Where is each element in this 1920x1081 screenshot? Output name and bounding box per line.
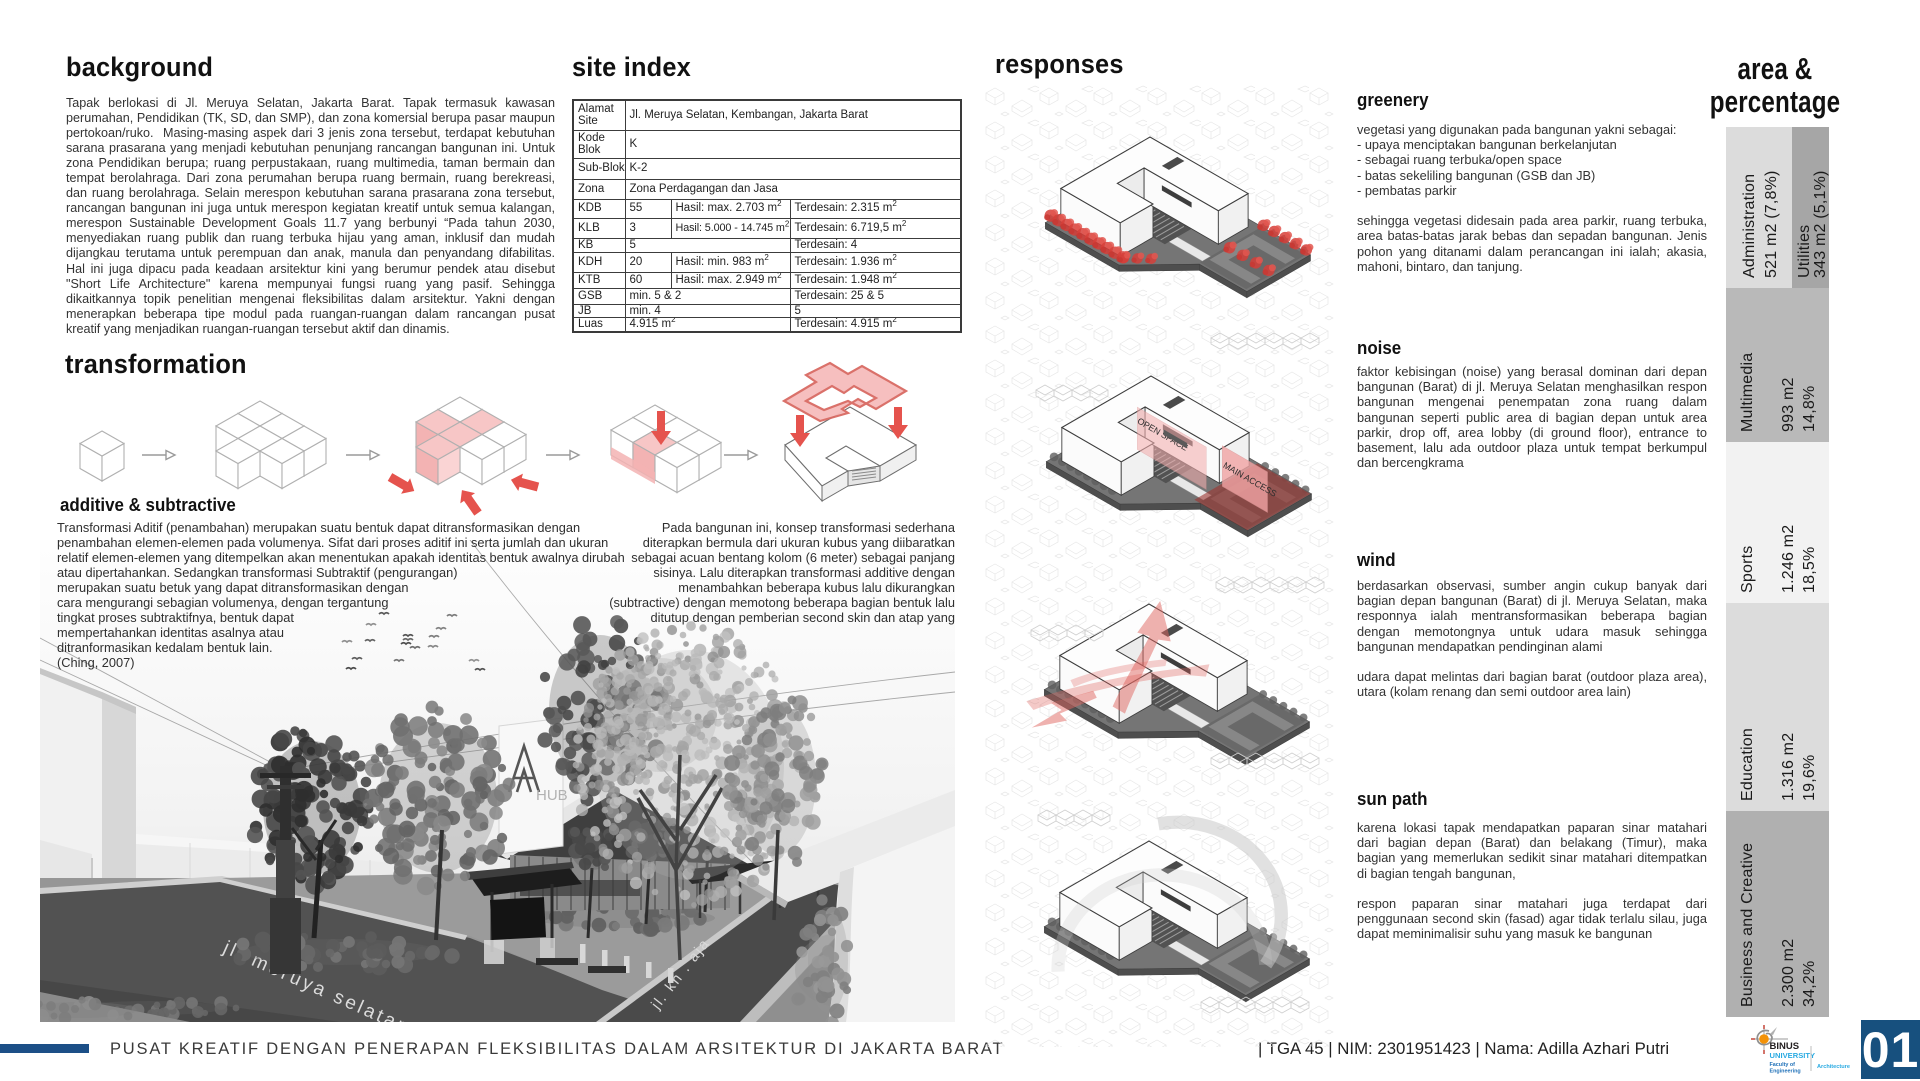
svg-text:UNIVERSITY: UNIVERSITY	[1770, 1051, 1816, 1060]
svg-text:Engineering: Engineering	[1770, 1069, 1801, 1075]
svg-text:Faculty of: Faculty of	[1770, 1062, 1796, 1068]
svg-text:HUB: HUB	[536, 787, 568, 804]
svg-text:Architecture: Architecture	[1817, 1064, 1850, 1070]
